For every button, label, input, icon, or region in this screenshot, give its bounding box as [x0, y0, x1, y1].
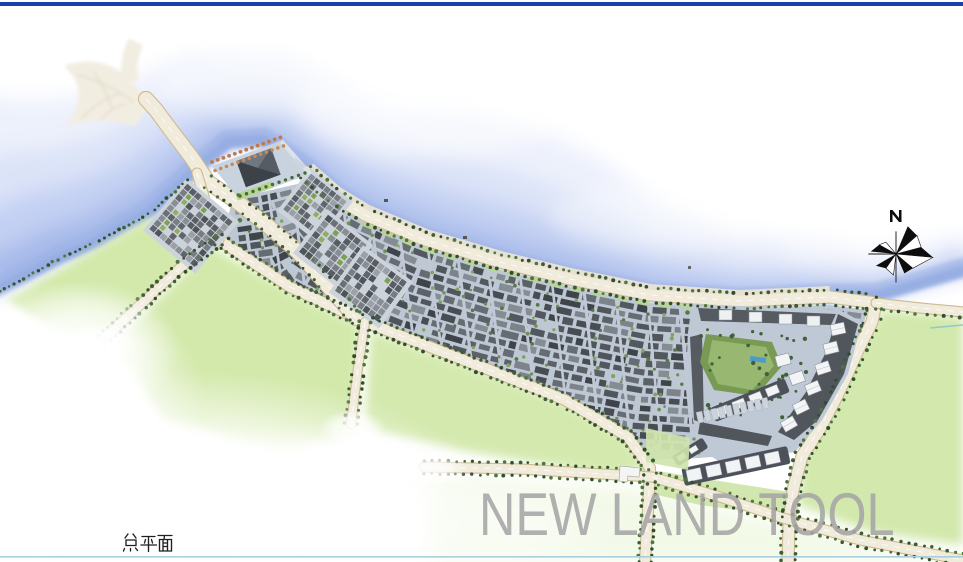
svg-text:NEW LAND TOOL: NEW LAND TOOL	[479, 481, 895, 548]
